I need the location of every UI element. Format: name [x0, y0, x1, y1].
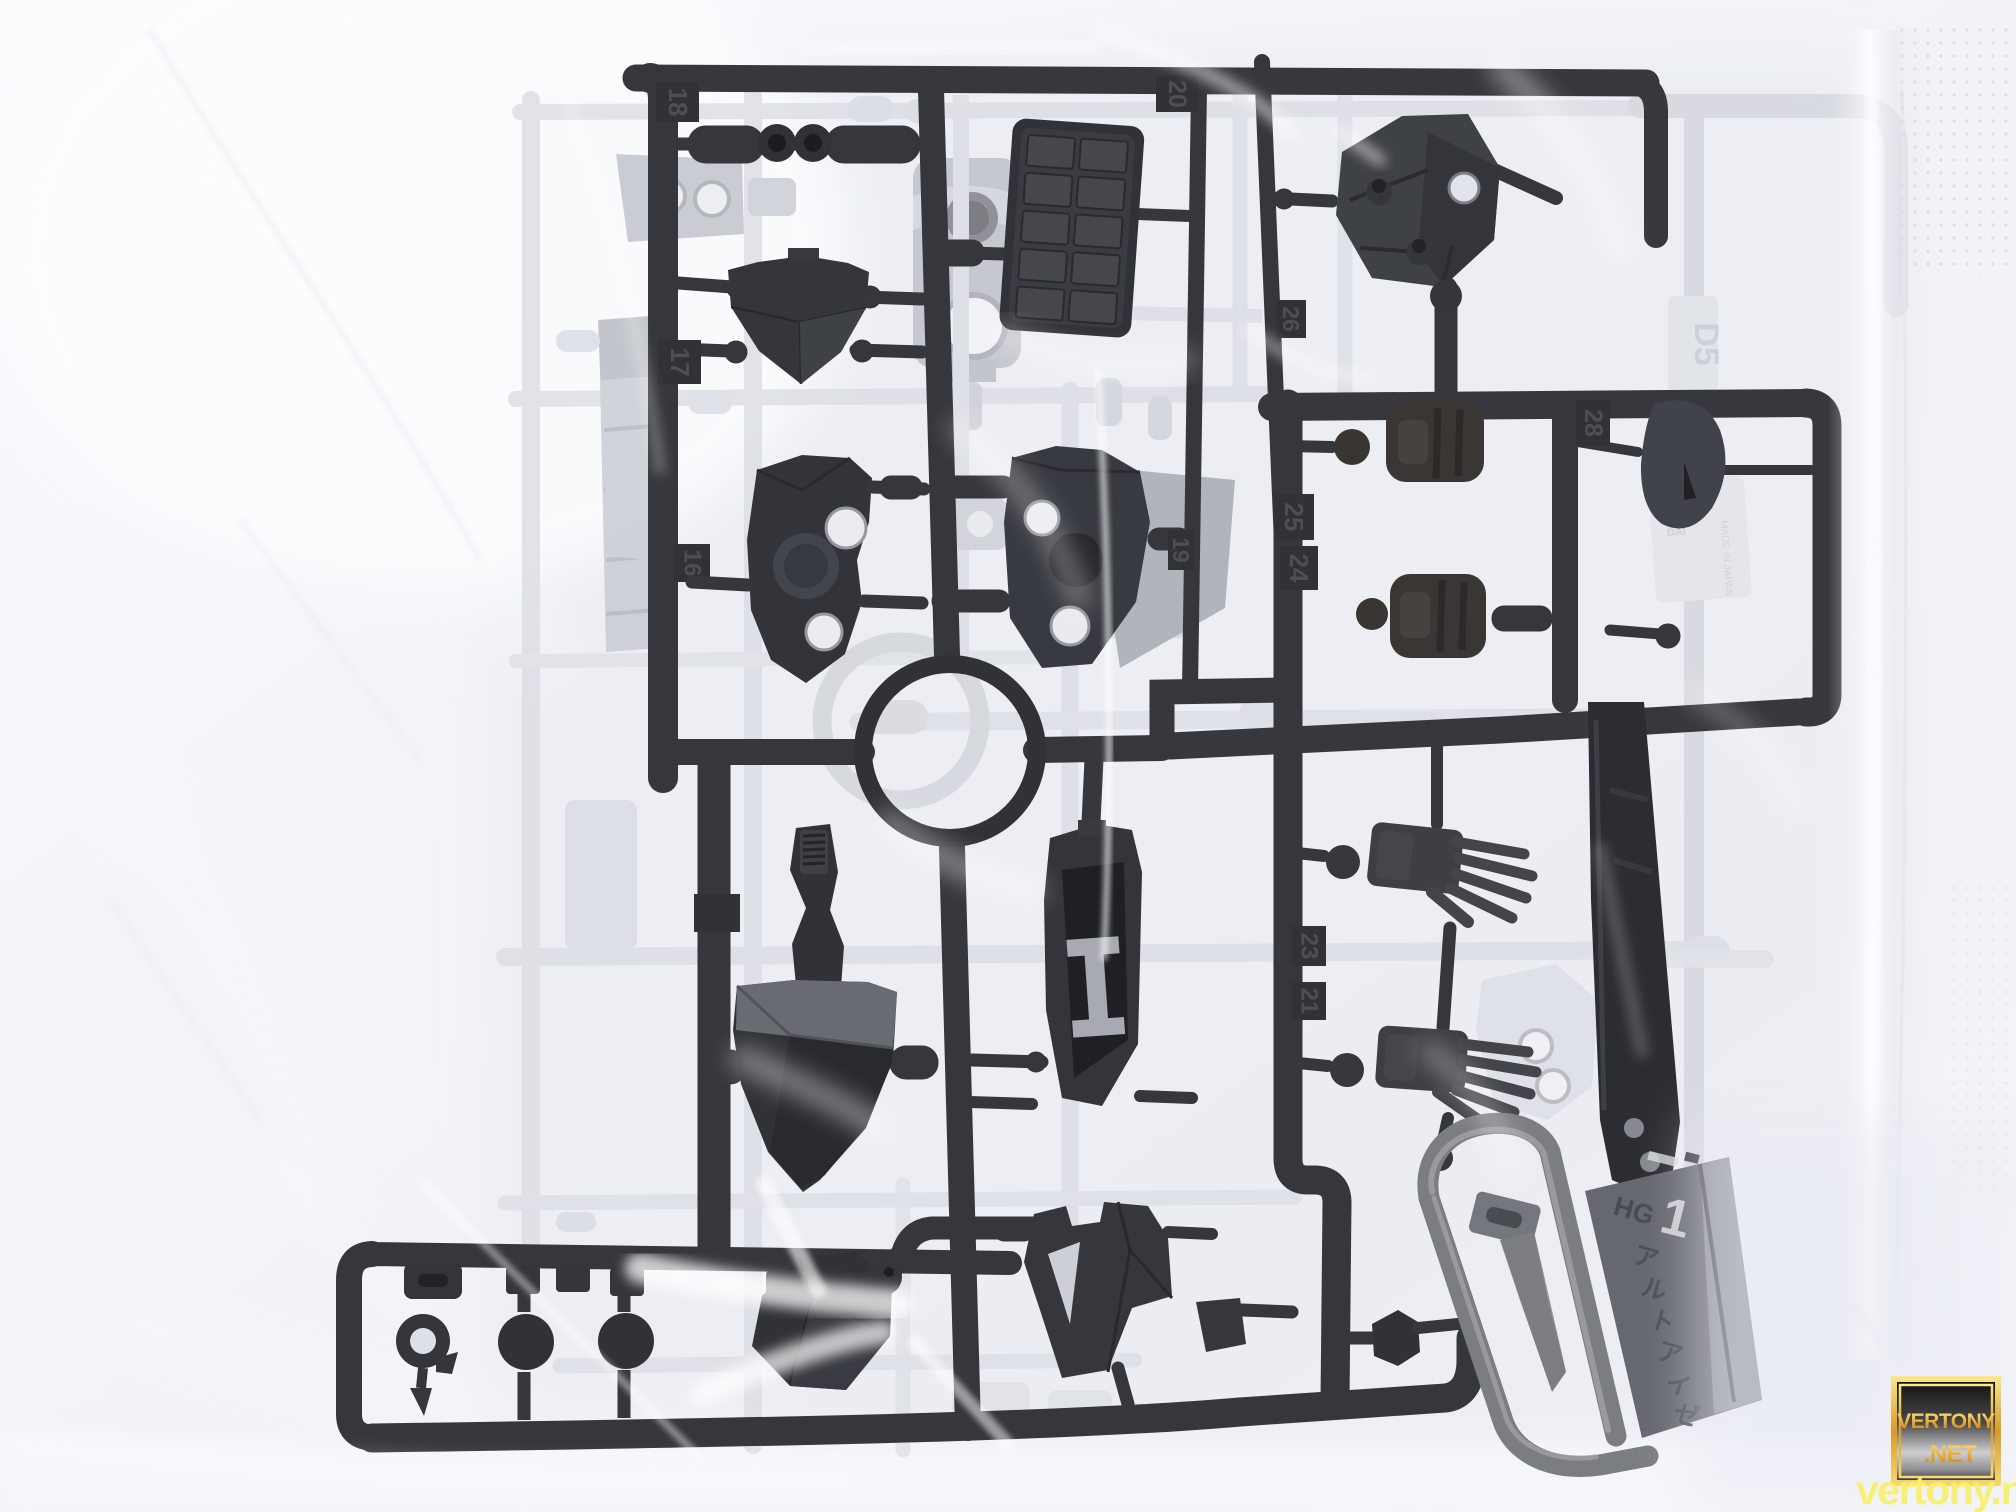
- svg-text:.NET: .NET: [1924, 1441, 1978, 1468]
- svg-text:vertony.net: vertony.net: [1856, 1467, 2016, 1512]
- svg-text:VERTONY: VERTONY: [1897, 1410, 1995, 1433]
